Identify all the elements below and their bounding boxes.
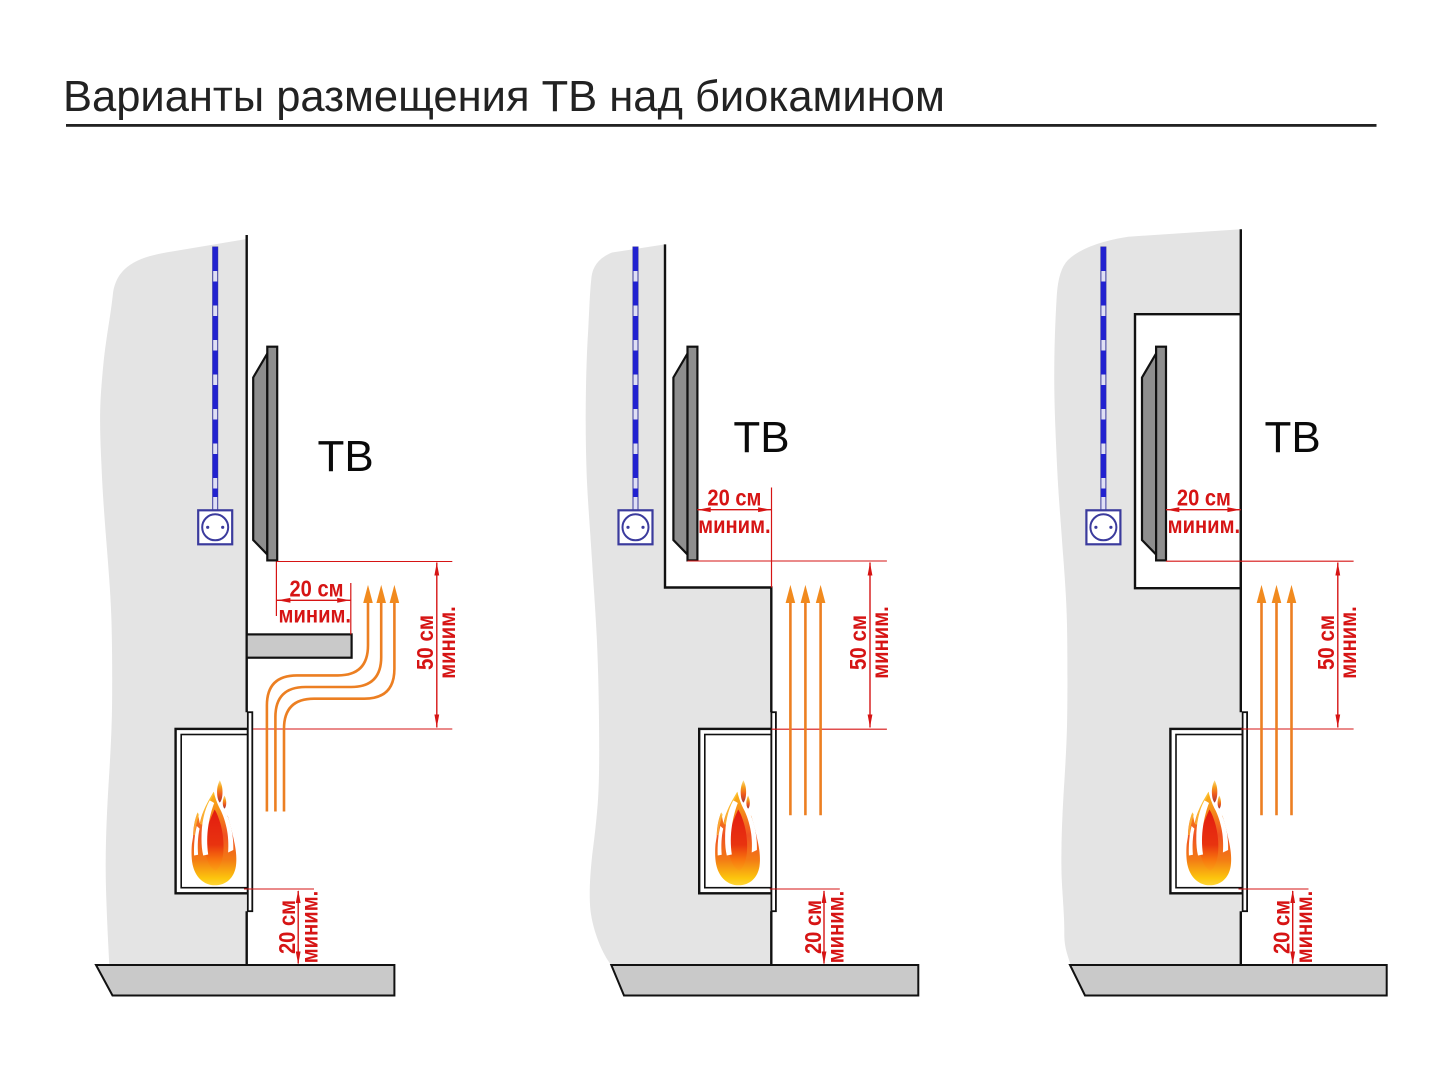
- svg-text:20 см: 20 см: [1177, 485, 1231, 511]
- svg-text:миним.: миним.: [434, 606, 460, 679]
- svg-text:Варианты размещения ТВ над био: Варианты размещения ТВ над биокамином: [63, 73, 945, 121]
- svg-text:миним.: миним.: [698, 512, 771, 538]
- svg-text:20 см: 20 см: [290, 575, 344, 601]
- svg-text:миним.: миним.: [279, 601, 352, 627]
- svg-text:ТВ: ТВ: [733, 413, 789, 462]
- svg-text:20 см: 20 см: [707, 485, 761, 511]
- svg-text:миним.: миним.: [1335, 606, 1361, 679]
- svg-text:миним.: миним.: [1168, 512, 1241, 538]
- svg-text:ТВ: ТВ: [1265, 413, 1321, 462]
- svg-text:ТВ: ТВ: [318, 432, 374, 481]
- svg-text:миним.: миним.: [867, 606, 893, 679]
